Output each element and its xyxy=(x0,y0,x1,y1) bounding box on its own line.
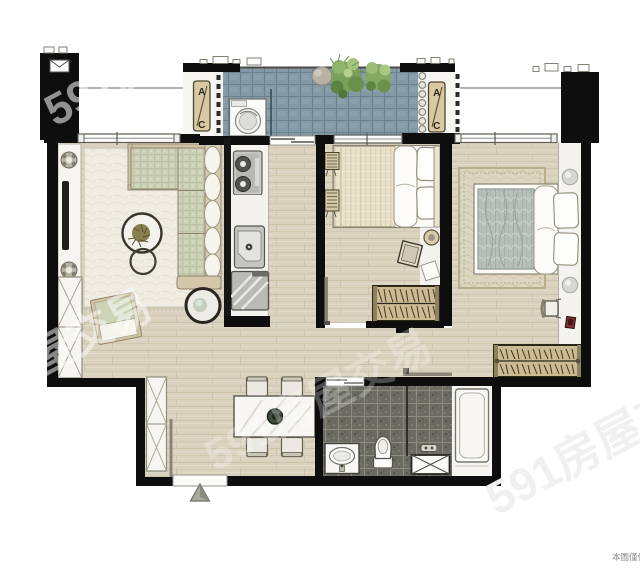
svg-text:A: A xyxy=(433,88,440,99)
svg-text:C: C xyxy=(198,120,205,131)
svg-text:C: C xyxy=(433,121,440,132)
svg-text:本圖僅供參考: 本圖僅供參考 xyxy=(612,552,640,562)
svg-text:A: A xyxy=(198,87,205,98)
